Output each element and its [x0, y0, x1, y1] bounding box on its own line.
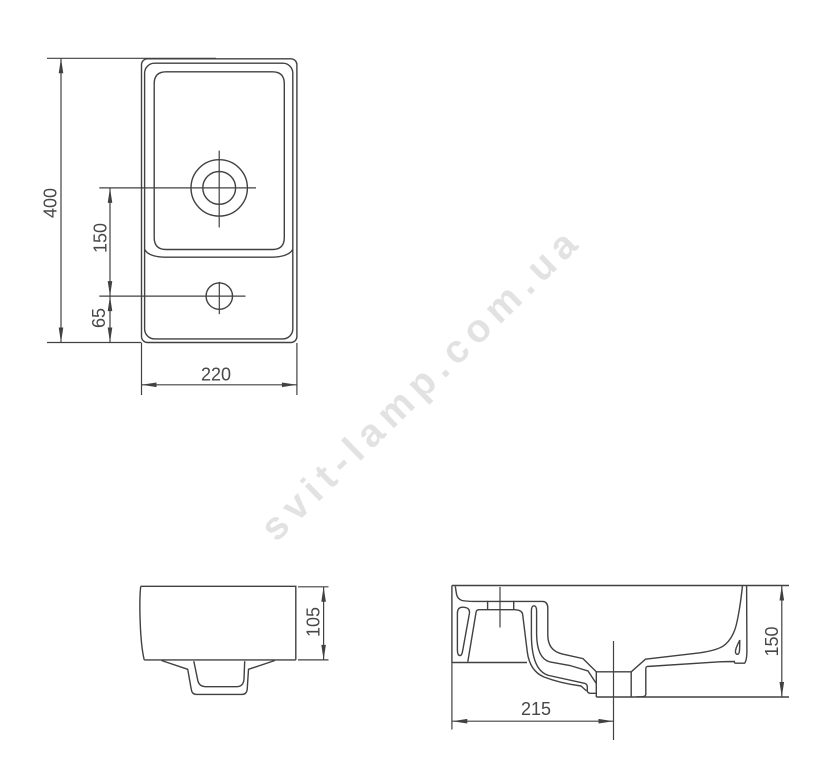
- svg-text:150: 150: [91, 223, 111, 253]
- svg-text:65: 65: [89, 308, 109, 328]
- svg-text:215: 215: [521, 699, 551, 719]
- svg-text:220: 220: [201, 365, 231, 385]
- svg-text:150: 150: [762, 626, 782, 656]
- svg-text:105: 105: [304, 607, 324, 637]
- svg-text:400: 400: [41, 188, 61, 218]
